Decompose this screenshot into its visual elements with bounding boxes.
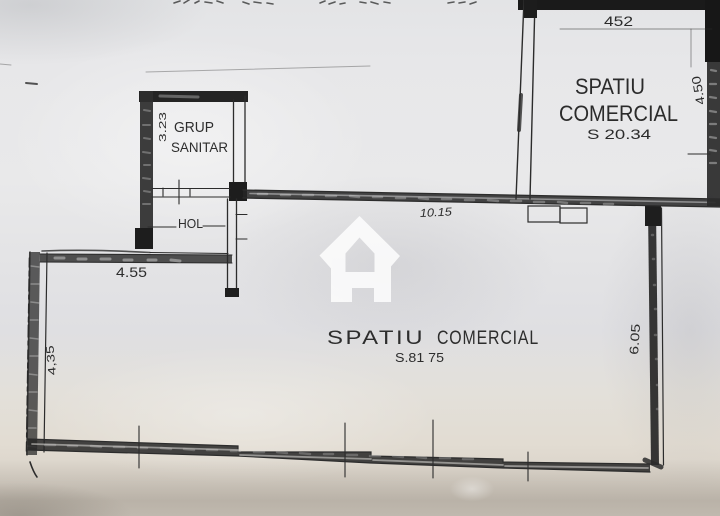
svg-text:3.23: 3.23 [157, 112, 169, 142]
svg-text:COMERCIAL: COMERCIAL [437, 328, 539, 349]
svg-text:10.15: 10.15 [420, 206, 453, 220]
svg-text:GRUP: GRUP [174, 119, 214, 136]
svg-text:4.50: 4.50 [689, 75, 708, 106]
svg-text:SANITAR: SANITAR [171, 139, 228, 155]
svg-text:S 20.34: S 20.34 [587, 126, 651, 142]
svg-text:SPATIU: SPATIU [327, 328, 425, 349]
svg-text:4,35: 4,35 [44, 345, 59, 376]
svg-text:452: 452 [604, 13, 633, 29]
svg-text:6.05: 6.05 [627, 323, 643, 355]
svg-text:SPATIU: SPATIU [575, 74, 645, 99]
svg-text:HOL: HOL [178, 216, 203, 231]
svg-text:COMERCIAL: COMERCIAL [559, 101, 678, 126]
svg-text:4.55: 4.55 [116, 265, 147, 280]
svg-text:S.81 75: S.81 75 [395, 350, 444, 365]
